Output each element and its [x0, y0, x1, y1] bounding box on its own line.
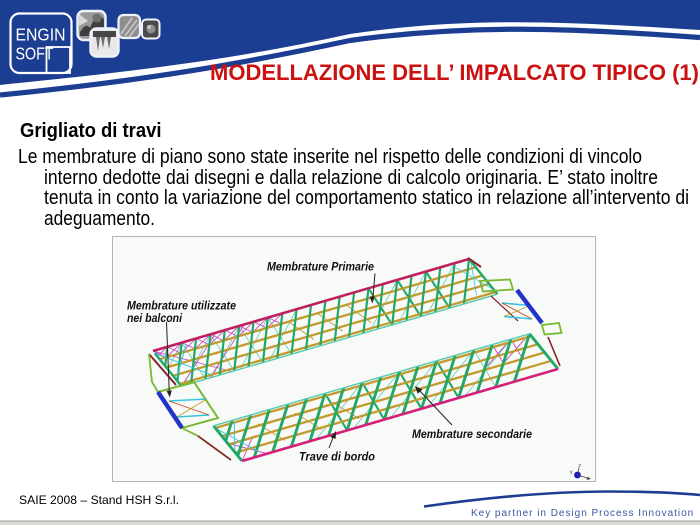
svg-text:ENGIN: ENGIN: [16, 25, 66, 45]
svg-text:SOFT: SOFT: [16, 44, 54, 64]
svg-text:nei balconi: nei balconi: [127, 313, 183, 325]
svg-text:z: z: [579, 463, 582, 469]
svg-text:Membrature utilizzate: Membrature utilizzate: [127, 301, 237, 313]
svg-text:Trave di bordo: Trave di bordo: [299, 452, 375, 464]
svg-text:Membrature secondarie: Membrature secondarie: [412, 429, 533, 441]
svg-text:Y: Y: [570, 471, 574, 477]
svg-text:Membrature Primarie: Membrature Primarie: [267, 262, 375, 274]
